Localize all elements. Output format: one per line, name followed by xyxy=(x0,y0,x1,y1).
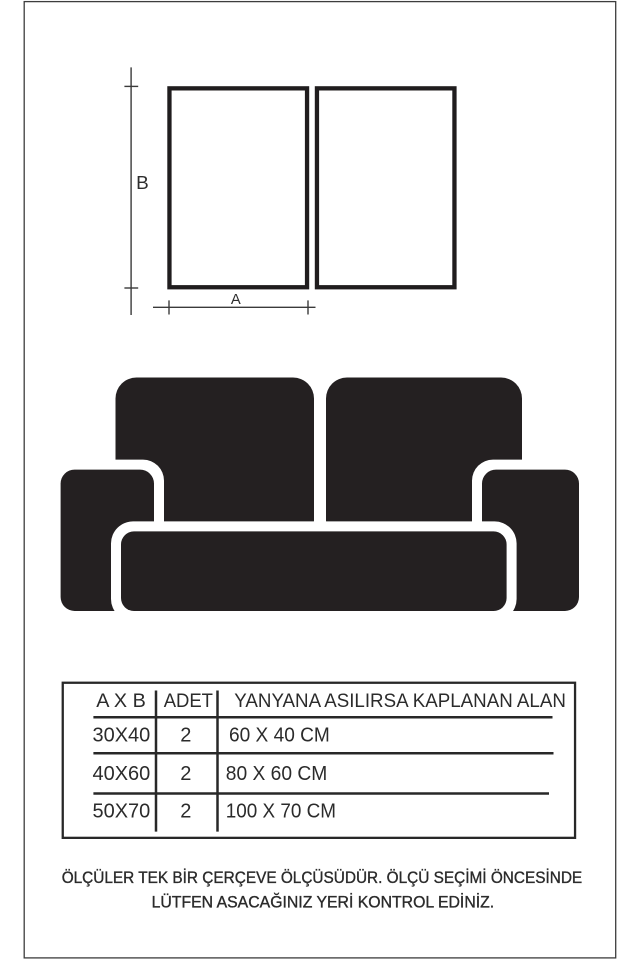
svg-text:2: 2 xyxy=(180,801,191,823)
svg-text:80 X 60 CM: 80 X 60 CM xyxy=(226,763,327,785)
svg-text:40X60: 40X60 xyxy=(93,763,151,785)
svg-text:50X70: 50X70 xyxy=(93,801,151,823)
svg-text:YANYANA ASILIRSA KAPLANAN ALAN: YANYANA ASILIRSA KAPLANAN ALAN xyxy=(234,691,566,712)
svg-text:LÜTFEN ASACAĞINIZ YERİ KONTROL: LÜTFEN ASACAĞINIZ YERİ KONTROL EDİNİZ. xyxy=(152,892,495,911)
svg-text:B: B xyxy=(136,173,149,194)
svg-text:A X B: A X B xyxy=(96,691,146,712)
svg-text:A: A xyxy=(231,292,241,308)
svg-text:2: 2 xyxy=(180,725,191,747)
svg-text:60 X 40 CM: 60 X 40 CM xyxy=(229,725,330,747)
svg-text:30X40: 30X40 xyxy=(93,725,151,747)
svg-text:2: 2 xyxy=(180,763,191,785)
svg-text:100 X 70 CM: 100 X 70 CM xyxy=(226,801,336,823)
svg-text:ÖLÇÜLER TEK BİR ÇERÇEVE ÖLÇÜSÜ: ÖLÇÜLER TEK BİR ÇERÇEVE ÖLÇÜSÜDÜR. ÖLÇÜ … xyxy=(62,868,583,887)
svg-text:ADET: ADET xyxy=(164,691,214,712)
